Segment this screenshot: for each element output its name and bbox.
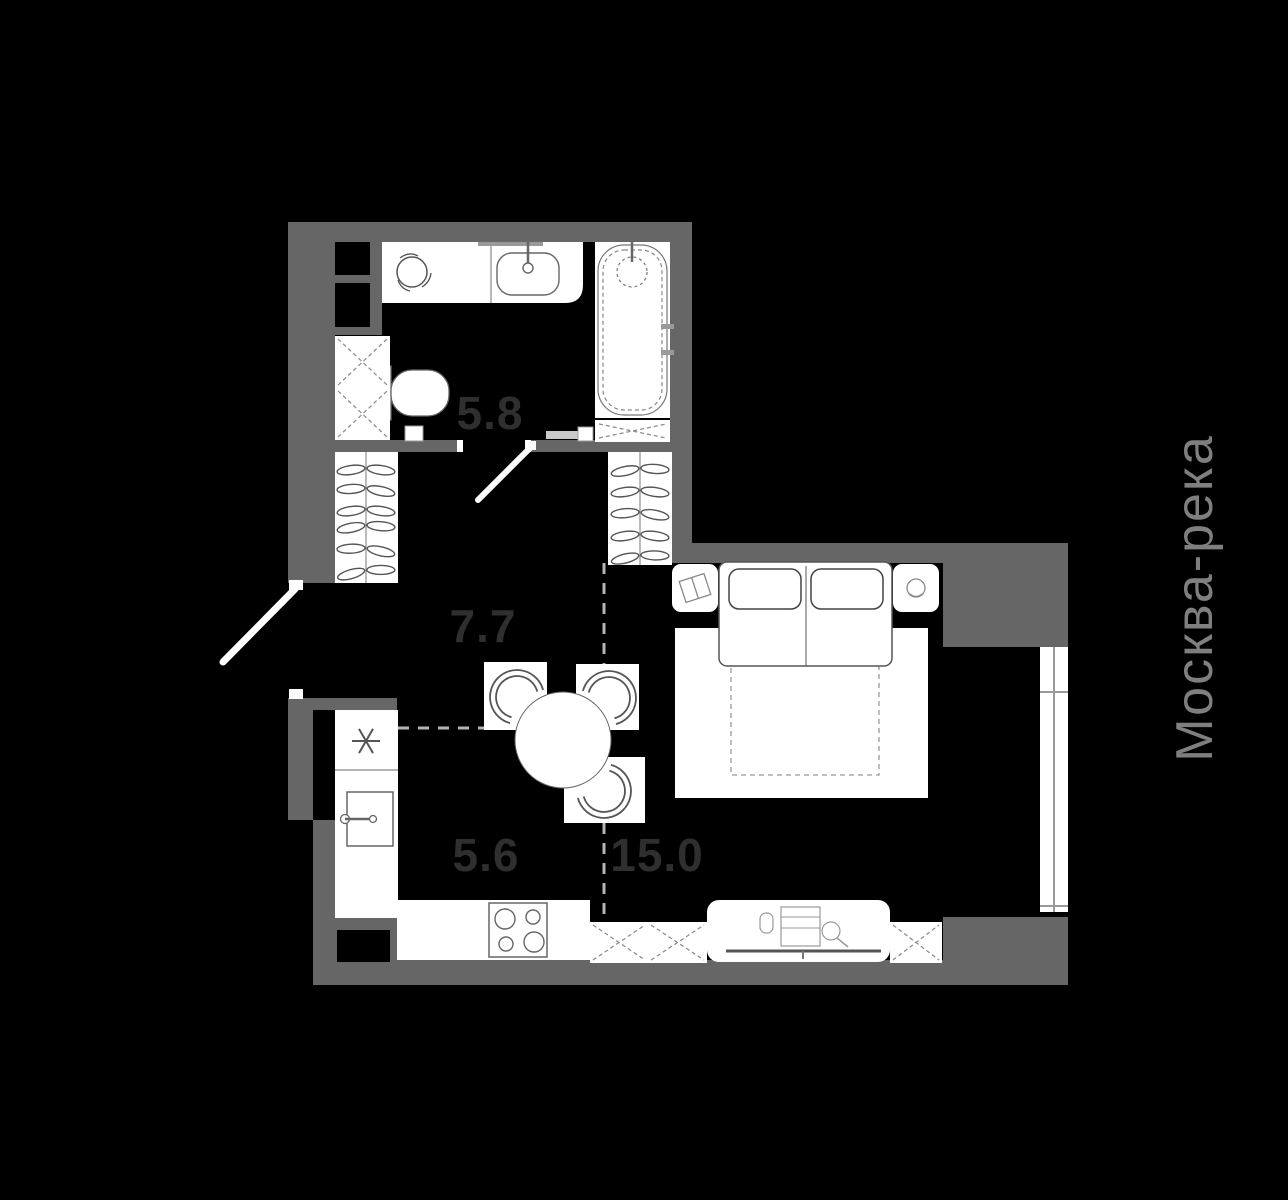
kitchen-area-label: 5.6 [453,829,520,881]
bathroom-area-label: 5.8 [457,387,524,439]
wall-bath-bottom-left [335,440,457,452]
shaft-2 [335,283,370,327]
wall-left-lower [313,820,335,985]
cabinet-icon [890,922,942,963]
mirror-icon [478,242,543,246]
cabinet-icon [648,922,707,963]
hallway-area-label: 7.7 [450,600,517,652]
wardrobe-right-icon [608,452,672,566]
shaft-1 [335,242,370,275]
wall-bath-right [670,222,692,452]
wall-corner-top-right [943,543,1068,647]
background [0,0,1288,1200]
shaft-3 [337,930,390,962]
nightstand-right-icon [893,564,939,612]
dining-table-icon [515,692,611,788]
cabinet-icon [590,922,648,963]
kitchen-sink-icon [335,770,398,918]
window-icon [1040,647,1068,912]
pillow-right [811,569,883,609]
tv-stand-icon [707,900,890,962]
nightstand-left-icon [672,564,718,612]
pillow-left [729,569,801,609]
door-stop [405,426,423,441]
kitchen-counter [397,900,590,960]
bedroom-zone [672,562,939,798]
bed-icon [719,562,892,666]
river-label: Москва-река [1166,434,1224,762]
fridge-icon [335,710,398,770]
living-room-area-label: 15.0 [610,829,704,881]
wardrobe-left-icon [335,452,398,583]
door-jamb-left [457,440,463,452]
vanity-sink-icon [443,242,583,303]
floor-plan-canvas: 5.8 7.7 5.6 15.0 Москва-река [0,0,1288,1200]
wall-bottom [313,960,1068,985]
bath-shelf-icon [595,420,670,442]
washing-machine-icon [382,242,443,303]
bathtub-icon [595,242,674,418]
floor-plan: 5.8 7.7 5.6 15.0 Москва-река [0,0,1288,1200]
wall-left-upper [288,335,335,583]
wall-kitchen-left [288,698,313,820]
bath-cabinet-icons [335,336,390,440]
stove-icon [489,903,547,957]
wall-top [288,222,692,242]
